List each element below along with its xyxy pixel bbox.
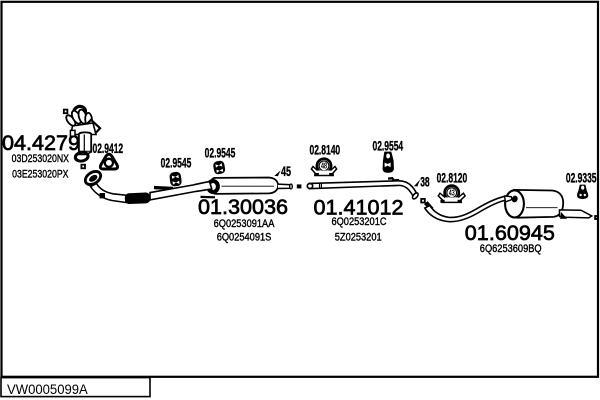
svg-text:01.30036: 01.30036 xyxy=(198,194,288,219)
svg-text:04.4279: 04.4279 xyxy=(2,130,80,155)
svg-text:01.60945: 01.60945 xyxy=(465,220,555,245)
svg-text:6Q0254091S: 6Q0254091S xyxy=(217,232,272,244)
svg-text:6Q0253091AA: 6Q0253091AA xyxy=(214,218,275,230)
svg-text:5Z0253201: 5Z0253201 xyxy=(335,232,382,244)
svg-text:6Q0253201C: 6Q0253201C xyxy=(331,216,387,228)
svg-text:03E253020PX: 03E253020PX xyxy=(12,169,69,181)
svg-text:02.9335: 02.9335 xyxy=(566,171,597,185)
svg-text:02.9545: 02.9545 xyxy=(161,156,192,170)
svg-text:02.8140: 02.8140 xyxy=(309,143,340,157)
svg-text:43: 43 xyxy=(449,189,455,197)
svg-text:45: 45 xyxy=(281,164,291,179)
svg-text:6Q6253609BQ: 6Q6253609BQ xyxy=(480,243,542,255)
svg-text:VW0005099A: VW0005099A xyxy=(7,382,88,397)
svg-text:03D253020NX: 03D253020NX xyxy=(12,153,70,165)
svg-text:38: 38 xyxy=(420,176,429,190)
svg-text:02.8120: 02.8120 xyxy=(437,171,468,185)
svg-text:02.9545: 02.9545 xyxy=(205,147,236,161)
svg-text:48: 48 xyxy=(321,163,327,171)
